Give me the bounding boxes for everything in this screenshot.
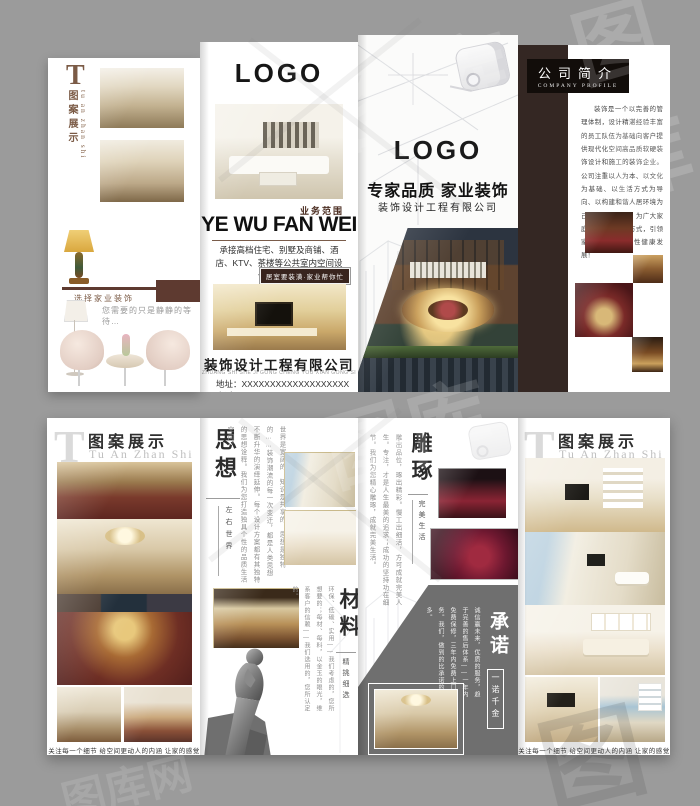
- material-sub: 精挑细选: [340, 658, 350, 718]
- trifold-inner: T 图案展示 Tu An Zhan Shi 关注每一个细节 给空间更动人的内涵 …: [47, 418, 670, 755]
- outer-gallery-panel: T 图案展示 tu an zhan shi 选择家业装饰 您需要的只是静静的等待…: [48, 58, 200, 392]
- services-tag: 居室要装潢·家业帮你忙: [260, 268, 350, 284]
- inner-gallery-right: T 图案展示 Tu An Zhan Shi 关注每一个细节 给空间更动人的内涵: [518, 418, 670, 755]
- gallery-left-footer: 关注每一个细节 给空间更动人的内涵 让家的感觉更好: [48, 745, 200, 755]
- profile-photo-3: [575, 283, 633, 337]
- company-pinyin: ZHUANG SHI SHE JI GONG CHENG YOU XIAN GO…: [200, 370, 358, 376]
- round-ceiling-dining-photo: [57, 612, 192, 685]
- carve-title: 雕琢: [406, 432, 436, 490]
- gallery-letter: T: [66, 60, 85, 92]
- outer-dark-strip: [518, 45, 568, 392]
- white-living-photo: [525, 532, 665, 605]
- interior-photo-tvwall: [213, 284, 346, 350]
- material-body: 环保、低碳、实用——我们考虑的，您所想要的；每材、每料，以金玉的眼光，维系客户的…: [300, 586, 336, 718]
- gallery-right-footer: 关注每一个细节 给空间更动人的内涵 让家的感觉更好: [518, 745, 670, 755]
- modern-living-photo-2: [284, 510, 356, 565]
- material-title: 材料: [334, 588, 358, 646]
- display-wall-photo: [525, 458, 665, 532]
- cover-company: 装饰设计工程有限公司: [358, 199, 518, 214]
- hallway-photo: [57, 687, 121, 742]
- bedroom-photo: [124, 687, 192, 742]
- thought-sub: 左右世界: [218, 506, 233, 576]
- poster-canvas: T 图案展示 tu an zhan shi 选择家业装饰 您需要的只是静静的等待…: [0, 0, 700, 806]
- trifold-outer: T 图案展示 tu an zhan shi 选择家业装饰 您需要的只是静静的等待…: [47, 35, 670, 392]
- inner-gallery-left: T 图案展示 Tu An Zhan Shi 关注每一个细节 给空间更动人的内涵 …: [48, 418, 200, 755]
- promise-sub: 一诺千金: [487, 669, 504, 729]
- chinese-hall-photo: [213, 588, 299, 648]
- chairs-image: [54, 320, 196, 388]
- modern-living-photo-1: [284, 452, 355, 507]
- profile-photo-2: [633, 255, 663, 283]
- inner-thought-panel: 思想 左右世界 世界是宽阔的，知识是共享的，思想是独特的……装饰潮流的每一次变迁…: [200, 418, 358, 755]
- window-study-photo: [600, 677, 665, 742]
- address-line: 地址：XXXXXXXXXXXXXXXXXXX: [216, 378, 349, 390]
- tv-room-photo: [525, 677, 598, 742]
- outer-cover-panel: LOGO 专家品质 家业装饰 装饰设计工程有限公司: [358, 35, 518, 392]
- inner-carve-panel: 雕出品位，琢出精彩。慢工出细活，方可成就完美人生。专注，才是人生最美的追求；成功…: [358, 418, 518, 755]
- services-title: YE WU FAN WEI: [200, 213, 358, 237]
- thinker-statue-image: [200, 642, 296, 755]
- accent-rect: [156, 280, 200, 302]
- gallery-title-cn: 图案展示: [64, 90, 79, 200]
- phone-line: 电话：XXXXXXXXXXXXXXXXXXX: [216, 390, 349, 392]
- carve-sub: 完美生活: [412, 500, 426, 564]
- outer-services-panel: LOGO 业务范围 YE WU FAN WEI 承接高档住宅、别墅及商铺、酒店、…: [200, 42, 358, 392]
- interior-photo-sofa: [215, 104, 343, 199]
- table-lamp-image: [62, 230, 96, 288]
- cream-living-photo: [525, 605, 665, 675]
- red-ktv-photo: [430, 528, 518, 580]
- logo-text: LOGO: [200, 58, 358, 89]
- promise-title: 承诺: [484, 611, 511, 663]
- gallery-left-title-en: Tu An Zhan Shi: [89, 447, 194, 462]
- red-bar-photo: [438, 468, 506, 518]
- profile-title-en: COMPANY PROFILE: [528, 83, 628, 89]
- thought-body: 世界是宽阔的，知识是共享的，思想是独特的……装饰潮流的每一次变迁，都是人类思想不…: [240, 426, 288, 584]
- profile-photo-1: [585, 212, 633, 253]
- tape-measure-sketch: [463, 418, 515, 465]
- profile-header-box: 公司简介 COMPANY PROFILE: [528, 60, 628, 92]
- cover-slogan: 专家品质 家业装饰: [358, 177, 518, 201]
- interior-photo-livingroom: [100, 140, 184, 202]
- carve-body: 雕出品位，琢出精彩。慢工出细活，方可成就完美人生。专注，才是人生最美的追求；成功…: [362, 434, 404, 612]
- banquet-hall-photo: [57, 462, 192, 519]
- photo-strip: [57, 594, 192, 612]
- profile-photo-4: [632, 337, 663, 372]
- outer-profile-panel: 装饰是一个以完善的管理体制，设计精湛经验丰富的员工队伍为基础向客户提供现代化空间…: [568, 45, 670, 392]
- gallery-title-en: tu an zhan shi: [79, 90, 88, 210]
- profile-title-cn: 公司简介: [528, 63, 628, 82]
- promise-photo-frame: [368, 683, 464, 755]
- cover-logo-text: LOGO: [358, 135, 518, 166]
- interior-photo-dining: [100, 68, 184, 128]
- hotel-lobby-photo: [57, 519, 192, 594]
